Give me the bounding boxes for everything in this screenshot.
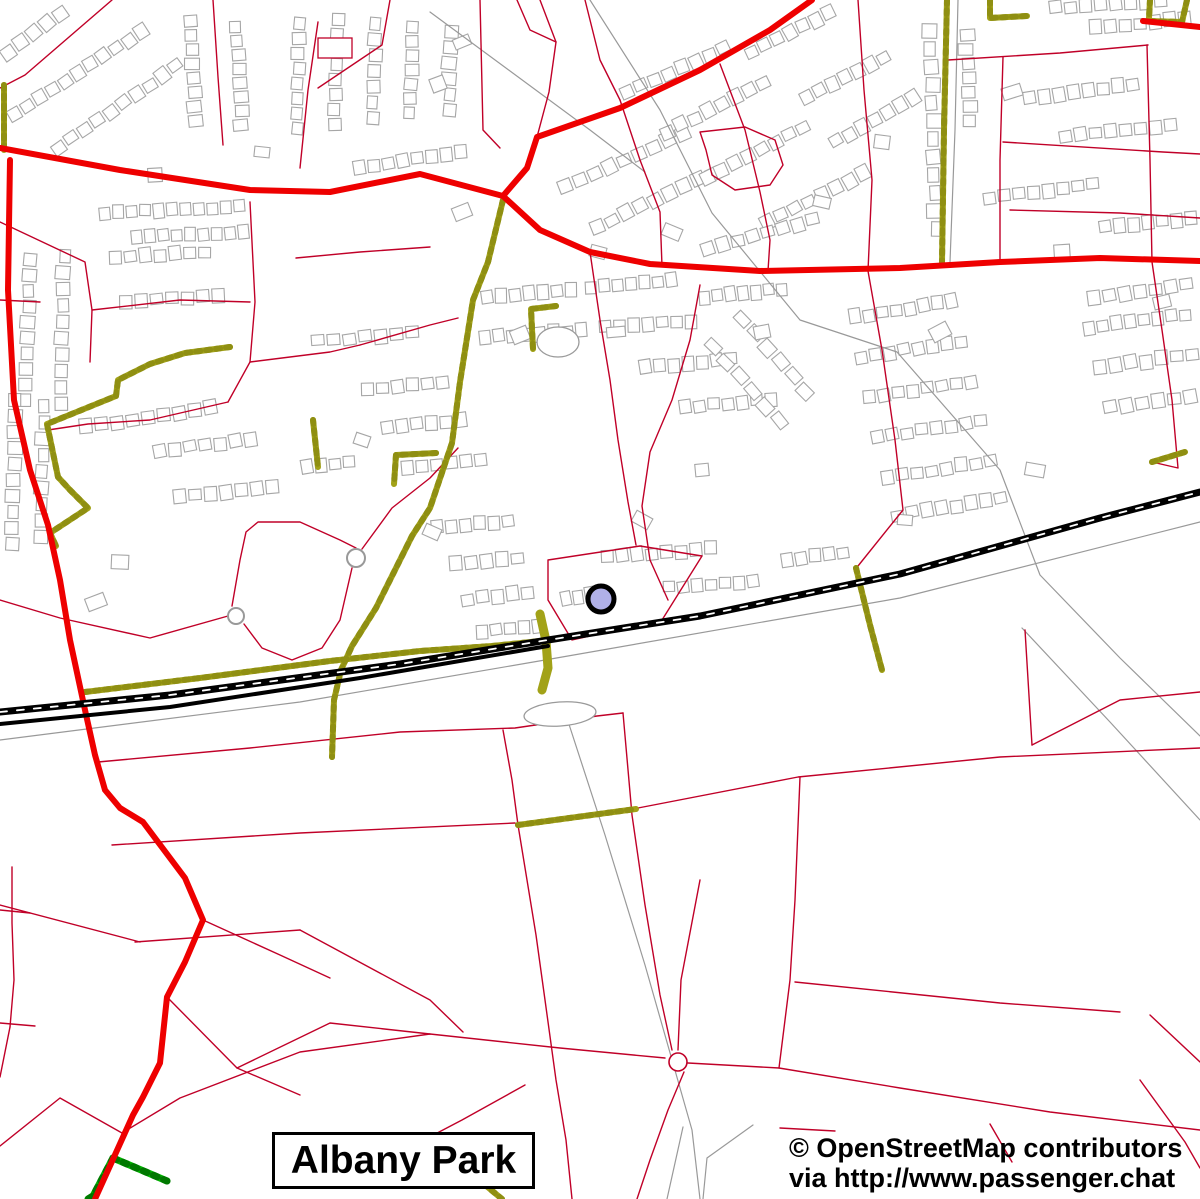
water-layer	[523, 327, 596, 728]
map-canvas[interactable]: Albany Park © OpenStreetMap contributors…	[0, 0, 1200, 1199]
attribution-line-1: © OpenStreetMap contributors	[789, 1133, 1182, 1163]
map-attribution: © OpenStreetMap contributors via http://…	[789, 1133, 1182, 1193]
place-label-text: Albany Park	[291, 1139, 516, 1183]
map-image	[0, 0, 1200, 1199]
marker-layer	[588, 586, 614, 612]
attribution-line-2: via http://www.passenger.chat	[789, 1163, 1182, 1193]
place-label-box: Albany Park	[272, 1132, 535, 1189]
location-marker-icon[interactable]	[588, 586, 614, 612]
